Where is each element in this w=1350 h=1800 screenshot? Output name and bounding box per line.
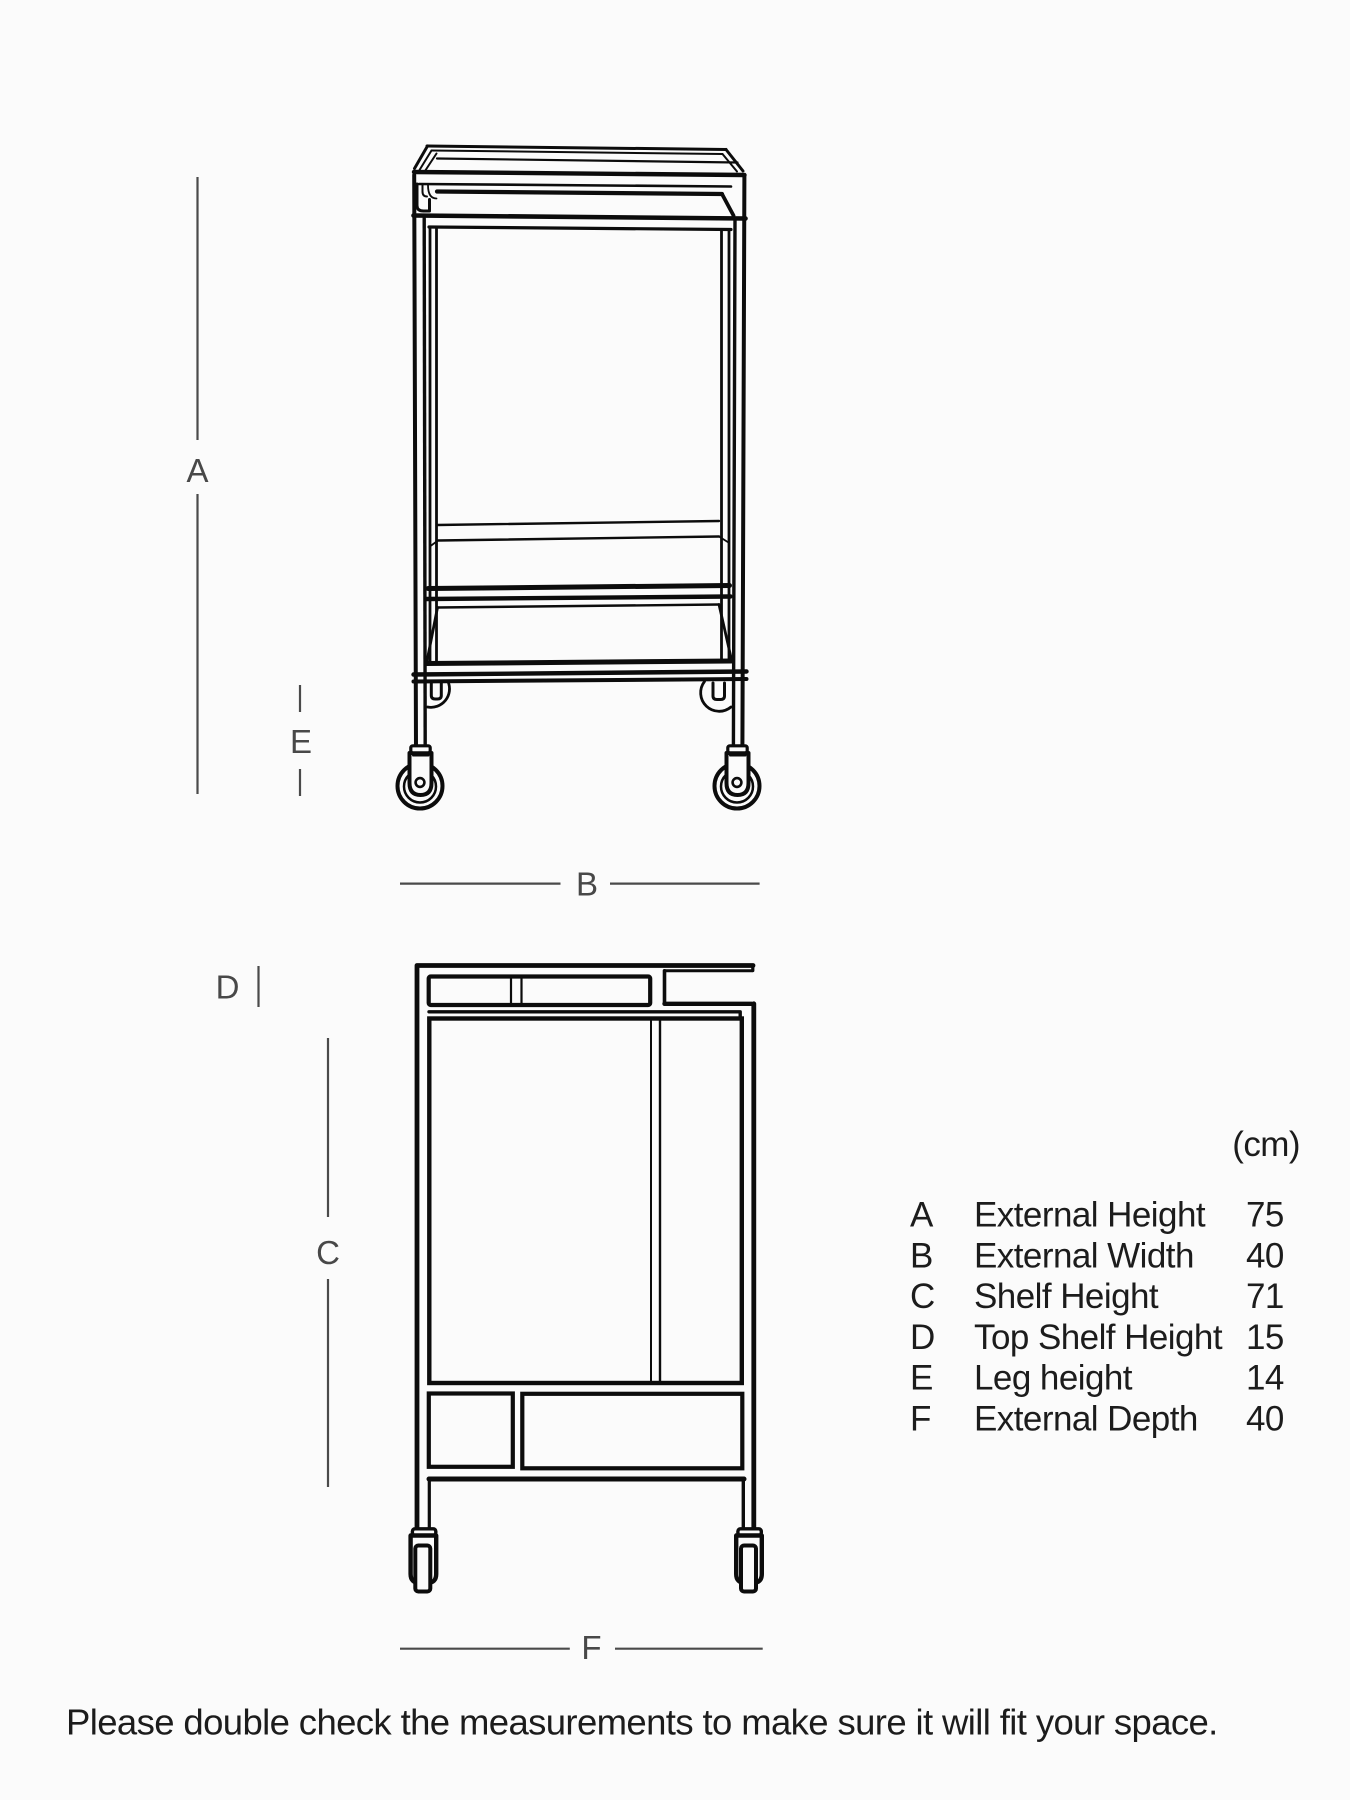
svg-text:E: E [290, 723, 312, 760]
svg-text:A: A [910, 1196, 934, 1235]
svg-text:F: F [581, 1629, 601, 1666]
svg-text:15: 15 [1246, 1318, 1284, 1357]
svg-text:External Width: External Width [974, 1236, 1194, 1275]
svg-text:40: 40 [1246, 1236, 1284, 1275]
svg-text:75: 75 [1246, 1196, 1284, 1235]
svg-text:D: D [216, 969, 240, 1006]
svg-text:Leg height: Leg height [974, 1359, 1133, 1398]
svg-text:B: B [576, 866, 598, 903]
svg-text:40: 40 [1246, 1400, 1284, 1439]
svg-text:Top Shelf Height: Top Shelf Height [974, 1318, 1223, 1357]
svg-text:B: B [910, 1236, 933, 1275]
svg-text:(cm): (cm) [1232, 1125, 1300, 1164]
svg-text:C: C [910, 1277, 935, 1316]
svg-text:C: C [316, 1234, 340, 1271]
svg-text:F: F [910, 1400, 931, 1439]
svg-text:E: E [910, 1359, 933, 1398]
svg-text:14: 14 [1246, 1359, 1284, 1398]
svg-text:Shelf Height: Shelf Height [974, 1277, 1159, 1316]
svg-text:External Depth: External Depth [974, 1400, 1198, 1439]
svg-text:A: A [186, 452, 208, 489]
svg-text:71: 71 [1246, 1277, 1284, 1316]
svg-text:D: D [910, 1318, 935, 1357]
svg-text:External Height: External Height [974, 1196, 1206, 1235]
svg-text:Please double check the measur: Please double check the measurements to … [66, 1702, 1218, 1743]
